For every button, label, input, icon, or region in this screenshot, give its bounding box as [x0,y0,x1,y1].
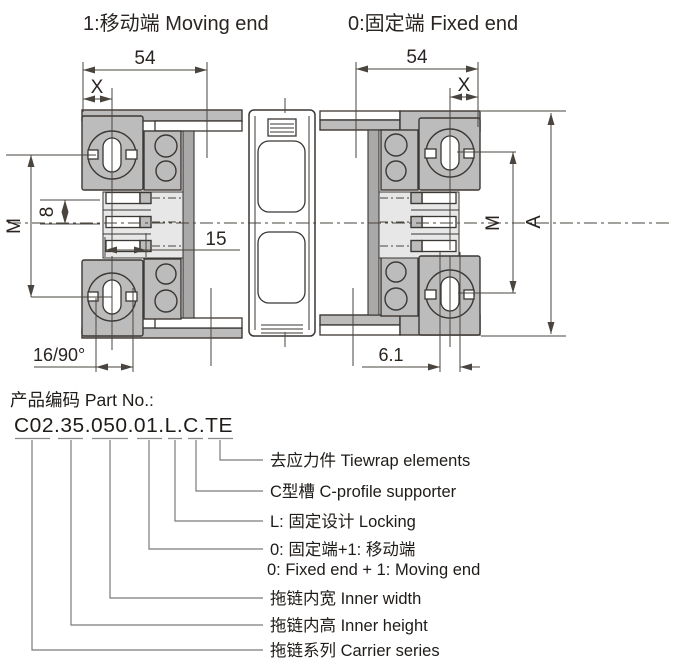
dim-54-right-value: 54 [406,47,428,68]
left-top-hole-2 [156,161,176,181]
right-top-rail [320,120,400,130]
leader-locking [175,440,263,521]
leader-inner-width [110,440,263,598]
dim-x-right-value: X [458,75,471,96]
dim-x-right: X [450,75,478,101]
legend-inner-width: 拖链内宽 Inner width [270,589,421,608]
block-notch [425,290,436,299]
block-notch [464,290,474,299]
block-notch [425,149,436,158]
dim-54-left-value: 54 [134,48,156,69]
right-bottom-hole-1 [386,262,406,282]
left-top-hole-1 [155,135,177,157]
legend-tiewrap: 去应力件 Tiewrap elements [270,451,470,470]
part-number-section: 产品编码 Part No.: C02.35.050.01.L.C.TE 去应力件… [10,390,480,660]
left-bottom-hole-2 [155,290,177,312]
tiewrap-pin-cap [411,217,422,228]
tiewrap-pin [106,217,140,228]
dim-15-value: 15 [205,229,226,250]
leader-tiewrap [220,440,263,460]
block-notch [464,149,474,158]
leader-c-profile [196,440,263,491]
datasheet-page: 1:移动端 Moving end 0:固定端 Fixed end [0,0,700,663]
legend-locking: L: 固定设计 Locking [270,512,416,531]
right-top-rail-notch [320,111,400,120]
legend-ends: 0: 固定端+1: 移动端 [270,540,415,559]
leader-carrier-series [32,440,263,650]
fixed-end-label: 0:固定端 Fixed end [348,12,518,35]
block-notch [126,150,137,159]
technical-drawing: 1:移动端 Moving end 0:固定端 Fixed end [0,0,700,663]
dim-x-left: X [83,77,112,103]
tiewrap-pin [106,193,140,204]
block-notch [126,292,137,301]
leader-inner-height [71,440,263,625]
part-number-code: C02.35.050.01.L.C.TE [14,414,233,437]
left-bottom-hole-1 [156,264,176,284]
dim-x-left-value: X [91,77,104,98]
dim-8-value: 8 [37,207,58,218]
tiewrap-pin-cap [411,193,422,204]
legend: 去应力件 Tiewrap elements C型槽 C-profile supp… [32,440,480,660]
right-top-hole-2 [386,161,406,181]
legend-carrier-series: 拖链系列 Carrier series [270,641,440,660]
legend-ends-en: 0: Fixed end + 1: Moving end [267,561,480,579]
end-labels: 1:移动端 Moving end 0:固定端 Fixed end [83,12,518,35]
left-top-rail-notch [155,121,242,131]
right-top-hole-1 [385,134,407,156]
right-side-plate [368,130,379,315]
tiewrap-pin [422,241,456,252]
right-tiewrap-comb [379,192,459,258]
dim-8: 8 [37,200,100,224]
dim-6-1-value: 6.1 [378,345,403,365]
dim-16-90-value: 16/90° [33,345,85,365]
tiewrap-pin-cap [411,241,422,252]
part-number-title: 产品编码 Part No.: [10,390,154,410]
right-bottom-rail-notch [320,325,400,335]
right-bottom-hole-2 [385,288,407,310]
tiewrap-pin [422,217,456,228]
legend-c-profile: C型槽 C-profile supporter [270,482,457,501]
leader-ends [149,440,263,549]
legend-inner-height: 拖链内高 Inner height [270,616,428,635]
dim-a-value: A [523,215,545,229]
tiewrap-pin [422,193,456,204]
dim-m-left-value: M [4,218,25,234]
tiewrap-pin-cap [140,193,151,204]
tiewrap-pin-cap [140,217,151,228]
left-bracket [82,110,242,338]
moving-end-label: 1:移动端 Moving end [83,12,269,35]
link-window-top [258,141,305,212]
left-side-plate [183,131,194,318]
dim-m-right-value: M [483,215,504,231]
link-window-bottom [258,232,305,303]
